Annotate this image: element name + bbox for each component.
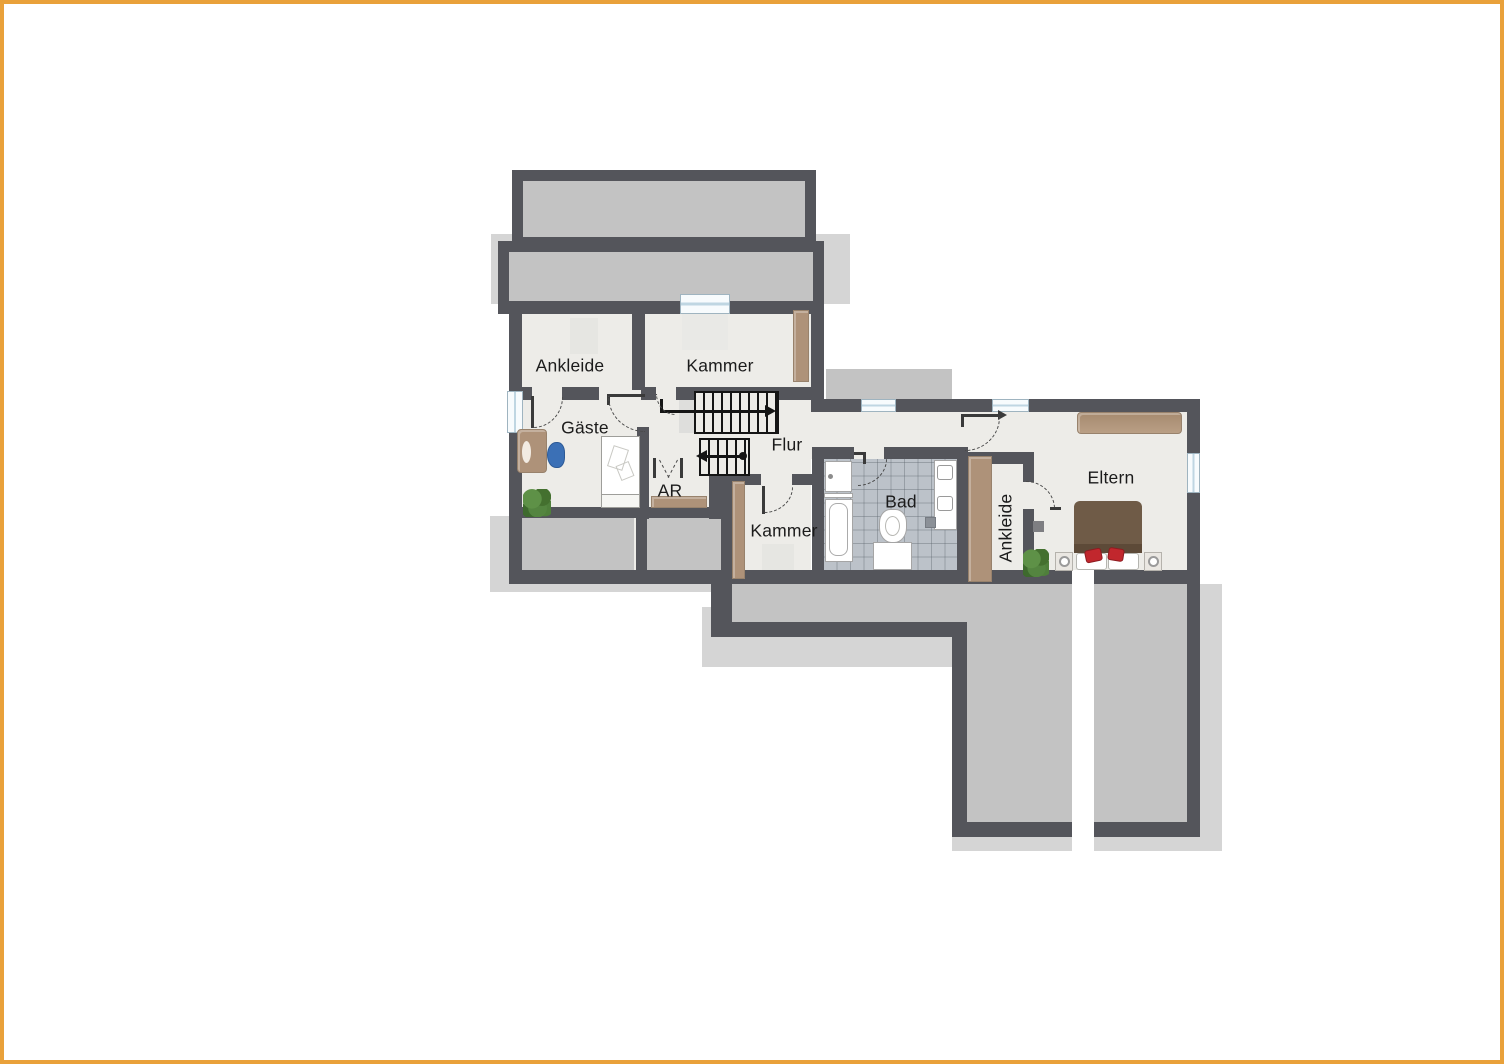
window-corridor-north-1 — [861, 399, 896, 412]
floor-plan: Ankleide Kammer Gäste Flur AR Kammer Bad… — [4, 4, 1500, 1060]
knee-roof-area-2 — [647, 518, 721, 570]
wall-north-left — [509, 301, 824, 314]
terrace-wall-mid — [952, 622, 967, 837]
double-bed-blanket — [1074, 501, 1142, 548]
floor-inlay-ankleide — [570, 318, 598, 354]
room-label-bad: Bad — [885, 492, 917, 513]
door-frame-ar-left — [653, 458, 656, 478]
wall-bad-right — [957, 447, 968, 584]
room-label-gaeste: Gäste — [561, 418, 609, 439]
room-label-ankleide-top: Ankleide — [536, 356, 605, 377]
section-cut-gap — [1072, 570, 1094, 851]
toilet-bowl-inner — [885, 516, 900, 536]
wall-bad-top-b — [884, 447, 968, 459]
vanity — [934, 460, 957, 530]
wardrobe-ankleide — [968, 456, 992, 582]
wall-east-left-block — [811, 301, 824, 412]
stairs-walkline-up — [660, 410, 765, 413]
roof-overhang-bottom-left — [490, 584, 732, 592]
wall-south — [509, 570, 1200, 584]
office-chair — [547, 442, 565, 468]
room-label-flur: Flur — [772, 435, 803, 456]
door-leaf-corridor-tick — [961, 414, 964, 427]
washbasin-faucet-icon — [828, 474, 833, 479]
room-label-ankleide-eltern: Ankleide — [996, 494, 1017, 563]
stairs-start-dot — [739, 452, 747, 460]
bathtub — [825, 499, 853, 562]
bathtub-basin — [829, 503, 848, 556]
wall-kammer-unten-left — [721, 474, 732, 584]
stairs-arrow-up-icon — [765, 405, 776, 417]
knee-roof-area-1 — [522, 518, 634, 570]
lamp-icon — [1059, 556, 1070, 567]
terrace-roof-strip — [732, 584, 967, 622]
vanity-sink-2 — [937, 496, 953, 511]
room-label-kammer-unten: Kammer — [750, 521, 817, 542]
desk-inlay — [522, 441, 531, 463]
bed-gaeste — [601, 436, 640, 496]
washbasin — [825, 461, 852, 492]
lamp-icon — [1148, 556, 1159, 567]
wall-knee-divider — [636, 516, 647, 570]
dormer-upper — [512, 170, 816, 248]
roof-overhang-terrace-step — [704, 637, 967, 667]
terrace-roof-left-panel — [967, 584, 1072, 822]
window-eltern-east — [1187, 453, 1200, 493]
plant-gaeste — [523, 489, 551, 517]
plant-eltern — [1023, 549, 1049, 577]
dormer-small-right — [826, 369, 952, 399]
floor-inlay-kammer — [682, 314, 728, 350]
page: Ankleide Kammer Gäste Flur AR Kammer Bad… — [0, 0, 1504, 1064]
nightstand-left — [1055, 552, 1073, 571]
room-label-ar: AR — [658, 481, 683, 502]
wall-bad-left — [812, 447, 824, 584]
door-jamb-eltern — [1050, 507, 1061, 510]
terrace-wall-inner — [711, 622, 967, 637]
stairs-arrow-down-icon — [696, 450, 707, 462]
wardrobe-kammer — [793, 310, 809, 382]
terrace-roof-right-panel — [1094, 584, 1187, 822]
window-kammer-north — [680, 294, 730, 314]
nightstand-right — [1144, 552, 1162, 571]
vanity-sink-1 — [937, 465, 953, 480]
room-label-eltern: Eltern — [1088, 468, 1135, 489]
floor-drain — [925, 517, 936, 528]
door-frame-ar-right — [680, 458, 683, 478]
bed-gaeste-sketch — [616, 461, 635, 481]
roof-overhang-right — [1200, 584, 1222, 851]
room-label-kammer-top: Kammer — [686, 356, 753, 377]
desk — [517, 429, 547, 473]
wall-segment — [562, 387, 599, 400]
wall-bad-top-a — [812, 447, 854, 459]
roof-overhang-left — [490, 516, 509, 592]
wall-box-eltern — [1033, 521, 1044, 532]
wardrobe-eltern — [1077, 412, 1182, 434]
bed-gaeste-footboard — [601, 494, 640, 508]
wall-ankleide-eltern-divider-a — [1023, 464, 1034, 482]
toilet-cistern — [873, 542, 912, 570]
window-gaeste-west — [507, 391, 523, 433]
wardrobe-kammer-unten — [732, 481, 745, 579]
bath-shelf — [824, 493, 853, 498]
wall-divider-ankleide-kammer — [632, 310, 645, 390]
toilet-bowl — [879, 509, 907, 543]
floor-inlay-kammer-unten — [762, 544, 794, 572]
cushion-red-right — [1107, 547, 1125, 562]
